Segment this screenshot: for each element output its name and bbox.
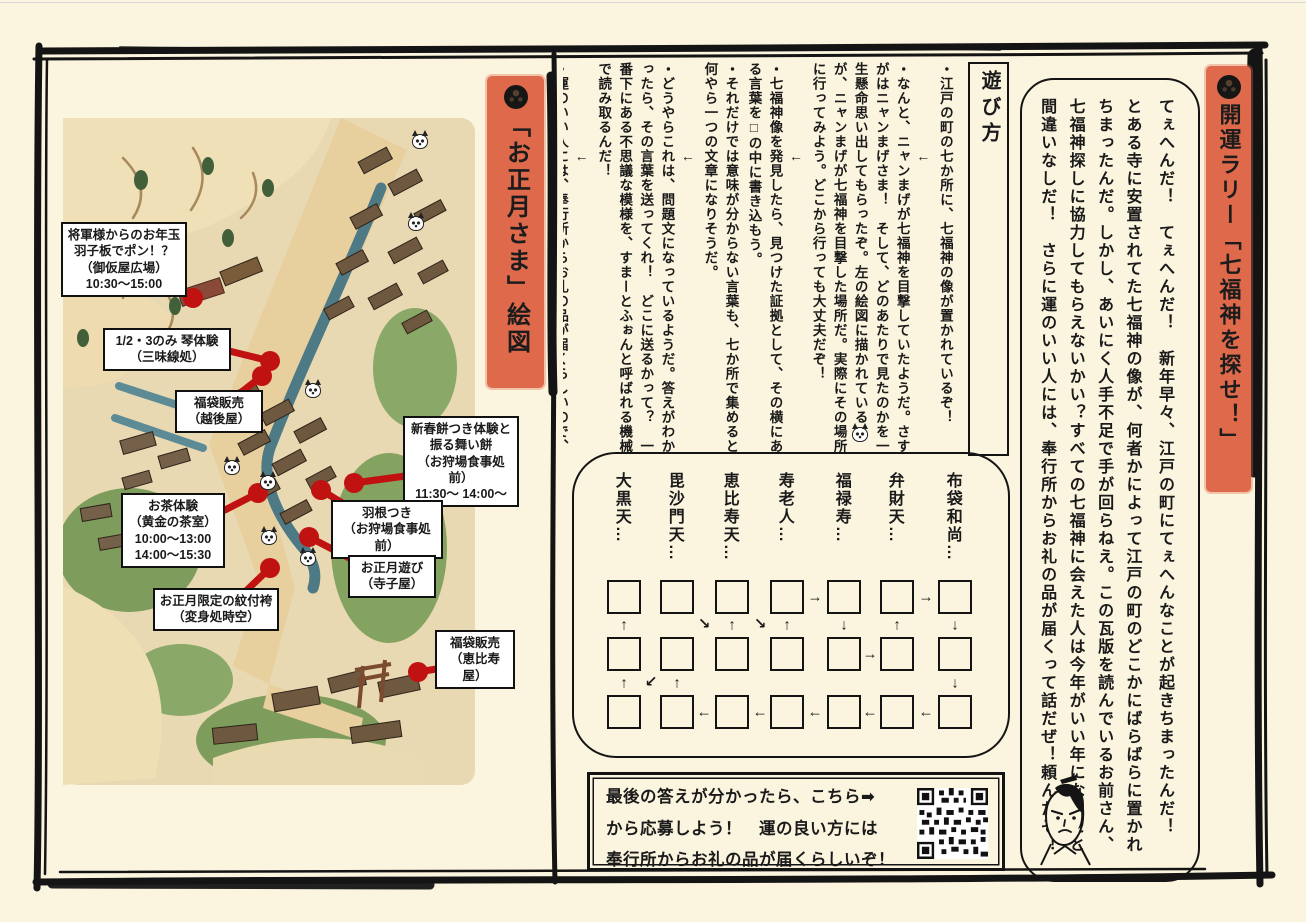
grid-arrow-icon: ← — [808, 705, 823, 720]
answer-box — [827, 637, 861, 671]
map-callout-fukubukuro-ebisuya: 福袋販売 （恵比寿屋） — [435, 630, 515, 689]
map-callout-hanetsuki: 羽根つき （お狩場食事処前） — [331, 500, 443, 559]
answer-box — [715, 695, 749, 729]
story-paragraph-2: とある寺に安置されてた七福神の像が、何者かによって江戸の町のどこかにばらばらに置… — [1032, 98, 1146, 866]
nyanmage-face-icon — [260, 475, 276, 490]
grid-arrow-icon: ↓ — [840, 618, 848, 633]
map-callout-ocha: お茶体験 （黄金の茶室） 10:00～13:00 14:00～15:30 — [121, 493, 225, 568]
nyanmage-seal-icon — [1217, 75, 1241, 99]
nyanmage-face-icon — [408, 216, 424, 231]
nyanmage-face-icon — [852, 427, 868, 442]
god-label-bishamonten: 毘沙門天… — [665, 472, 682, 584]
answer-box — [938, 695, 972, 729]
grid-arrow-icon: ↑ — [783, 618, 791, 633]
nyanmage-face-icon — [261, 530, 277, 545]
grid-arrow-icon: ← — [753, 705, 768, 720]
howto-step-2: ・なんと、ニャンまげが七福神を目撃していたようだ。さすがはニャンまげさま！ そし… — [808, 62, 913, 456]
map-callout-montsuki: お正月限定の紋付袴 （変身処時空） — [153, 588, 279, 631]
god-label-daikokuten: 大黒天… — [612, 472, 629, 584]
answer-box — [938, 580, 972, 614]
rally-title: 開運ラリー「七福神を探せ！」 — [1218, 103, 1240, 453]
grid-arrow-icon: ↓ — [951, 618, 959, 633]
grid-arrow-icon: → — [863, 647, 878, 662]
qr-code — [917, 788, 988, 859]
map-callout-hagoita: 将軍様からのお年玉 羽子板でポン！？ （御仮屋広場） 10:30～15:00 — [61, 222, 187, 297]
answer-box — [715, 637, 749, 671]
answer-box — [827, 695, 861, 729]
answer-box — [770, 695, 804, 729]
grid-arrow-icon: ↑ — [620, 618, 628, 633]
howto-step-2-text-b: が、ニャンまげが七福神を目撃した場所だ。実際にその場所に行ってみよう。どこから行… — [811, 62, 847, 454]
god-label-hotei: 布袋和尚… — [943, 472, 960, 584]
grid-arrow-icon: ↙ — [645, 675, 658, 690]
grid-arrow-icon: ↑ — [728, 618, 736, 633]
answer-box — [660, 695, 694, 729]
nyanmage-face-icon — [224, 460, 240, 475]
grid-arrow-icon: ← — [863, 705, 878, 720]
map-callout-mochitsuki: 新春餅つき体験と 振る舞い餅 （お狩場食事処前） 11:30～ 14:00～ — [403, 416, 519, 507]
how-to-play-section: 遊び方 ・江戸の町の七か所に、七福神の像が置かれているぞ！ ← ・なんと、ニャン… — [563, 58, 1015, 456]
flow-arrow-icon: ← — [915, 58, 933, 168]
rally-title-banner: 開運ラリー「七福神を探せ！」 — [1206, 66, 1251, 492]
map-callout-oshogatsu-asobi: お正月遊び （寺子屋） — [348, 555, 436, 598]
god-label-benzaiten: 弁財天… — [885, 472, 902, 584]
answer-box — [827, 580, 861, 614]
grid-arrow-icon: → — [808, 590, 823, 605]
story-text: てぇへんだ！ てぇへんだ！ 新年早々、江戸の町にてぇへんなことが起きちまったんだ… — [1032, 98, 1186, 866]
grid-arrow-icon: ↑ — [620, 676, 628, 691]
window-top-edge — [0, 2, 1306, 3]
map-title-banner: 「お正月さま」絵図 — [487, 76, 544, 388]
answer-box — [880, 695, 914, 729]
grid-arrow-icon: ↘ — [754, 617, 767, 632]
grid-arrow-icon: ↑ — [673, 676, 681, 691]
flow-arrow-icon: ← — [788, 58, 806, 168]
how-to-play-title: 遊び方 — [968, 62, 1009, 456]
grid-arrow-icon: → — [919, 590, 934, 605]
edo-village-map: 将軍様からのお年玉 羽子板でポン！？ （御仮屋広場） 10:30～15:00 1… — [63, 118, 475, 785]
answer-box — [880, 580, 914, 614]
grid-arrow-icon: ← — [919, 705, 934, 720]
apply-info-box: 最後の答えが分かったら、こちら➡ から応募しよう！ 運の良い方には 奉行所からお… — [587, 772, 1005, 871]
howto-step-1: ・江戸の町の七か所に、七福神の像が置かれているぞ！ — [935, 62, 956, 456]
nyanmage-seal-icon — [504, 85, 528, 109]
map-title: 「お正月さま」絵図 — [504, 113, 528, 356]
story-panel: てぇへんだ！ てぇへんだ！ 新年早々、江戸の町にてぇへんなことが起きちまったんだ… — [1020, 78, 1200, 882]
story-paragraph-1: てぇへんだ！ てぇへんだ！ 新年早々、江戸の町にてぇへんなことが起きちまったんだ… — [1150, 98, 1178, 866]
map-callout-fukubukuro-echigoya: 福袋販売 （越後屋） — [175, 390, 263, 433]
answer-box — [607, 695, 641, 729]
map-callout-koto: 1/2・3のみ 琴体験 （三味線処） — [103, 328, 231, 371]
answer-box — [607, 637, 641, 671]
howto-step-4: ・それだけでは意味が分からない言葉も、七か所で集めると何やら一つの文章になりそう… — [699, 62, 741, 456]
grid-arrow-icon: ← — [697, 705, 712, 720]
answer-box — [770, 580, 804, 614]
answer-grid-panel: 大黒天… 毘沙門天… 恵比寿天… 寿老人… 福禄寿… 弁財天… 布袋和尚… → … — [572, 452, 1010, 758]
howto-step-5: ・どうやらこれは、問題文になっているようだ。答えがわかったら、その言葉を送ってく… — [593, 62, 677, 456]
howto-step-2-text-a: ・なんと、ニャンまげが七福神を目撃していたようだ。さすがはニャンまげさま！ そし… — [853, 62, 910, 454]
answer-box — [660, 580, 694, 614]
flow-arrow-icon: ← — [679, 58, 697, 168]
flow-arrow-icon: ← — [573, 58, 591, 168]
samurai-face-icon — [1032, 772, 1098, 868]
nyanmage-face-icon — [412, 134, 428, 149]
nyanmage-face-icon — [300, 551, 316, 566]
howto-step-3: ・七福神像を発見したら、見つけた証拠として、その横にある言葉を□の中に書き込もう… — [743, 62, 785, 456]
nyanmage-face-icon — [305, 383, 321, 398]
answer-box — [660, 637, 694, 671]
grid-arrow-icon: ↑ — [893, 618, 901, 633]
grid-arrow-icon: ↓ — [951, 676, 959, 691]
answer-box — [880, 637, 914, 671]
answer-box — [938, 637, 972, 671]
god-label-jurojin: 寿老人… — [775, 472, 792, 584]
grid-arrow-icon: ↘ — [698, 617, 711, 632]
apply-instructions: 最後の答えが分かったら、こちら➡ から応募しよう！ 運の良い方には 奉行所からお… — [606, 782, 895, 877]
answer-box — [607, 580, 641, 614]
howto-step-6: ・運のいい人には、奉行所からお礼の品が届くらしいので、送り先の住所も忘れずにな！ — [563, 62, 571, 456]
answer-box — [770, 637, 804, 671]
god-label-ebisuten: 恵比寿天… — [720, 472, 737, 584]
god-label-fukurokuju: 福禄寿… — [832, 472, 849, 584]
answer-box — [715, 580, 749, 614]
